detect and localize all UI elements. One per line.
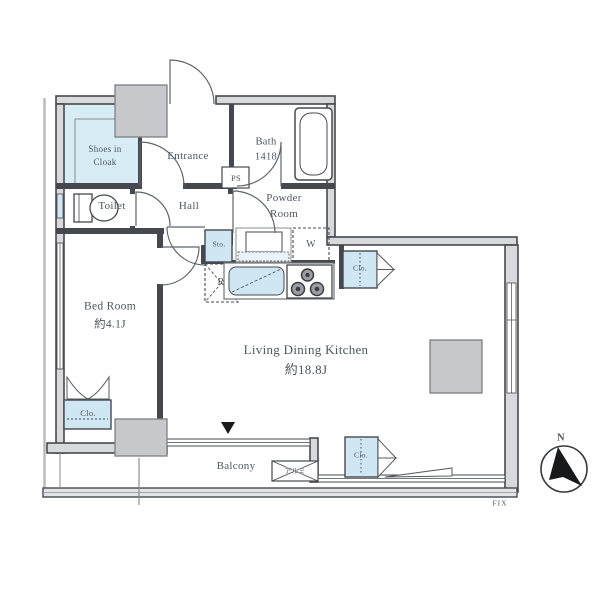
door-leaf-icon — [385, 468, 452, 477]
compass-icon — [541, 446, 587, 492]
pillar-bottom-left — [115, 419, 167, 456]
room-label-ldk: Living Dining Kitchen 約18.8J — [244, 340, 369, 380]
toilet-window — [57, 194, 63, 218]
pillar-top — [115, 85, 167, 137]
double-door-icon — [88, 377, 109, 399]
bathtub-icon — [295, 108, 332, 180]
room-label-hall: Hall — [179, 199, 199, 215]
bed-room-name: Bed Room — [84, 298, 136, 316]
bath-name: Bath — [255, 135, 277, 150]
direction-marker-icon — [221, 422, 235, 434]
room-label-powder-room: Powder Room — [255, 191, 313, 223]
room-label-shoes-in-cloak: Shoes in Cloak — [81, 143, 129, 169]
kitchen-counter-icon — [224, 263, 334, 299]
toilet-door-arc — [136, 192, 170, 226]
label-washing-machine: W — [306, 238, 316, 253]
label-closet-bedroom: Clo. — [80, 407, 96, 419]
room-label-bed-room: Bed Room 約4.1J — [84, 298, 136, 335]
pillar-living — [430, 340, 482, 393]
bath-size: 1418 — [255, 150, 277, 165]
closet-kitchen — [343, 251, 394, 288]
label-closet-kitchen: Clo. — [353, 264, 367, 275]
entrance-door-arc — [170, 60, 214, 104]
bed-room-size: 約4.1J — [84, 316, 136, 334]
bifold-door-icon — [377, 270, 394, 287]
ldk-size: 約18.8J — [244, 360, 369, 380]
bifold-door-icon — [378, 439, 396, 458]
bedroom-door-arc — [161, 247, 199, 285]
label-fixed-window: FIX — [492, 499, 507, 510]
room-label-toilet: Toilet — [98, 199, 125, 215]
label-pipe-space: PS — [231, 172, 241, 184]
floor-plan: Shoes in Cloak Entrance PS Bath 1418 Pow… — [0, 0, 608, 609]
label-storage: Sto. — [212, 240, 225, 251]
closet-bedroom — [64, 377, 111, 429]
ldk-door-arc — [167, 227, 205, 265]
room-label-balcony: Balcony — [217, 459, 256, 475]
room-label-bath: Bath 1418 — [255, 135, 277, 164]
sink-icon — [229, 267, 284, 295]
label-refrigerator: R — [218, 276, 225, 291]
stove-icon — [287, 265, 332, 298]
double-door-icon — [67, 377, 88, 399]
vanity-icon — [236, 228, 291, 262]
bifold-door-icon — [378, 458, 396, 477]
label-closet-living: Clo. — [354, 451, 368, 462]
label-aluminum-partition: アルミ — [285, 466, 306, 476]
ldk-name: Living Dining Kitchen — [244, 340, 369, 360]
bifold-door-icon — [377, 253, 394, 270]
room-label-entrance: Entrance — [167, 149, 209, 165]
compass-north-label: N — [557, 430, 565, 445]
